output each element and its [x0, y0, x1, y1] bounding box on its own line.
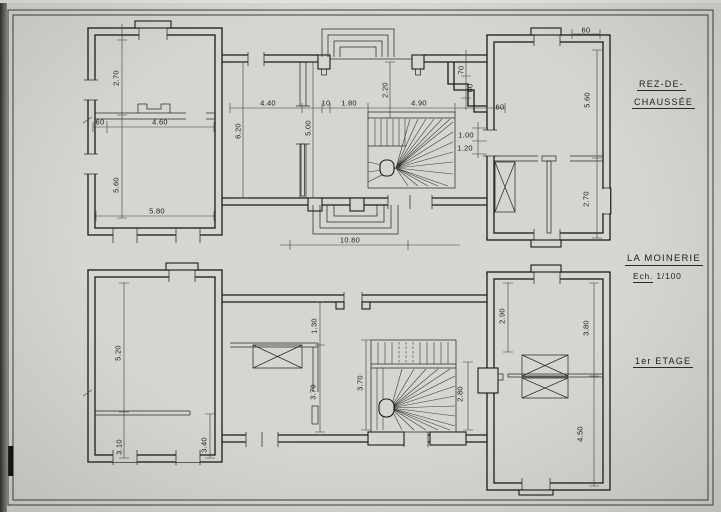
dimension-label: 1.20	[457, 144, 473, 153]
ff-crossed-box	[253, 345, 302, 368]
gf-entrance-steps-north	[318, 29, 424, 75]
ff-right-pavilion-interior	[508, 355, 603, 398]
ff-left-pavilion	[88, 270, 222, 462]
scale-label: Ech.	[633, 271, 653, 283]
dimension-label: 60	[582, 26, 591, 35]
ff-right-pavilion	[487, 272, 610, 490]
dimension-label: 2.80	[456, 386, 465, 402]
dimension-label: 5.00	[304, 120, 313, 136]
dimension-label: 3.70	[356, 375, 365, 391]
dimension-label: 4.40	[260, 99, 276, 108]
dimension-label: 3.10	[115, 439, 124, 455]
scale-note: Ech. 1/100	[633, 271, 682, 281]
floor-plan-drawing	[0, 0, 721, 512]
stair-newel	[380, 160, 394, 176]
dimension-label: 60	[496, 103, 505, 112]
first-floor-stair	[371, 340, 456, 432]
dimension-label: 5.80	[149, 207, 165, 216]
dimension-label: 4.90	[411, 99, 427, 108]
gf-left-porch	[135, 21, 171, 28]
scale-value: 1/100	[656, 271, 681, 281]
dimension-label: 60	[96, 118, 105, 127]
ff-left-partition	[95, 411, 190, 415]
dimension-label: 70	[457, 66, 466, 75]
stair-newel	[379, 399, 394, 417]
floor-title-rez-line1: REZ-DE-	[637, 79, 686, 91]
ff-left-porch	[166, 263, 198, 270]
ground-floor-plan	[83, 21, 611, 250]
ff-right-porch-south	[519, 490, 553, 495]
dimension-label: 60	[466, 84, 475, 93]
floor-title-etage: 1er ETAGE	[633, 356, 693, 368]
dimension-label: 4.60	[152, 118, 168, 127]
first-floor-plan	[83, 263, 610, 495]
dimension-label: 5.20	[114, 345, 123, 361]
gf-left-pavilion	[88, 28, 222, 235]
dimension-label: 3.70	[309, 384, 318, 400]
gf-right-pavilion-interior	[494, 156, 611, 233]
gf-entrance-steps-south	[308, 198, 398, 234]
dimension-label: 2.90	[498, 308, 507, 324]
column-stem	[547, 161, 551, 233]
door-leaf	[301, 144, 305, 196]
dimension-label: 2.70	[582, 191, 591, 207]
dimension-label: 2.20	[381, 82, 390, 98]
fireplace	[138, 104, 170, 113]
border-ink-mark	[9, 446, 14, 476]
dimension-label: 3.80	[582, 320, 591, 336]
drawing-sheet: REZ-DE- CHAUSSÉE LA MOINERIE Ech. 1/100 …	[0, 0, 721, 512]
dimension-label: 5.60	[583, 92, 592, 108]
floor-title-rez-line2: CHAUSSÉE	[632, 97, 695, 109]
dimension-label: 2.70	[112, 70, 121, 86]
gf-right-porch-north	[531, 28, 561, 35]
ff-right-porch-north	[531, 265, 561, 272]
project-title: LA MOINERIE	[625, 253, 703, 266]
dimension-label: 1.80	[341, 99, 357, 108]
gf-right-porch-south	[531, 240, 561, 247]
ground-floor-stair	[368, 112, 455, 188]
dimension-label: 3.40	[200, 437, 209, 453]
dimension-label: 1.00	[458, 131, 474, 140]
dimension-label: 1.30	[310, 318, 319, 334]
gf-right-pavilion	[487, 35, 610, 240]
dimension-label: 10.80	[340, 236, 360, 245]
ff-chimney-block	[478, 368, 503, 393]
dimension-label: 10	[322, 99, 331, 108]
dimension-label: 4.50	[576, 426, 585, 442]
dimension-label: 6.20	[234, 123, 243, 139]
dimension-label: 5.60	[112, 177, 121, 193]
